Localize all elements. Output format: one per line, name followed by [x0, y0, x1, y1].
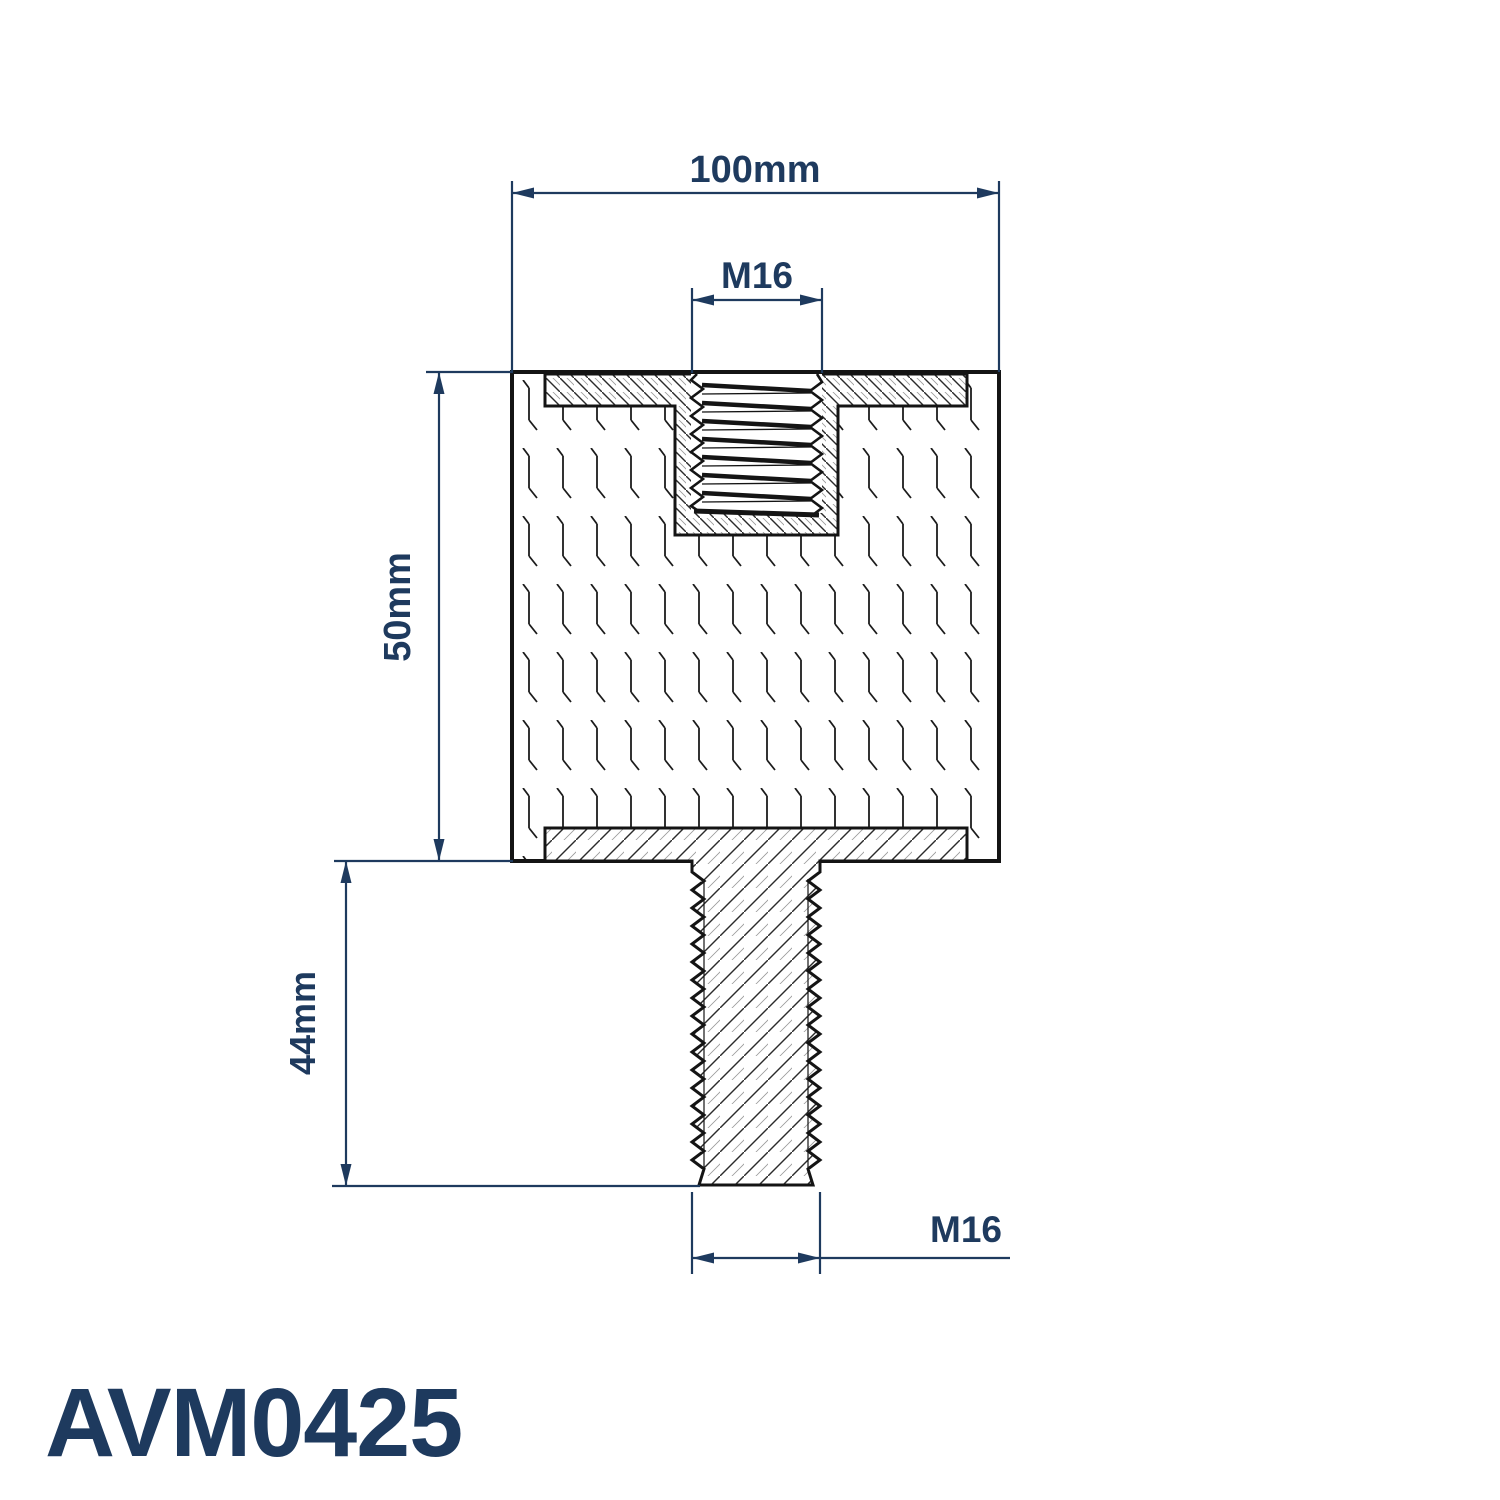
part-section-view [512, 372, 999, 1185]
arrowhead [800, 295, 822, 306]
technical-drawing-page: 100mm M16 50mm 44mm M16 AVM0425 [0, 0, 1500, 1500]
arrowhead [341, 861, 352, 883]
label-bottom-thread: M16 [930, 1209, 1002, 1250]
arrowhead [798, 1253, 820, 1264]
technical-drawing-canvas: 100mm M16 50mm 44mm M16 AVM0425 [0, 0, 1500, 1500]
label-overall-width: 100mm [690, 149, 821, 191]
arrowhead [434, 372, 445, 394]
arrowhead [977, 188, 999, 199]
part-number-title: AVM0425 [45, 1368, 462, 1477]
label-stud-length: 44mm [282, 971, 323, 1075]
bottom-plate-stud [545, 828, 967, 1185]
arrowhead [341, 1164, 352, 1186]
arrowhead [434, 839, 445, 861]
arrowhead [692, 1253, 714, 1264]
label-body-height: 50mm [377, 552, 419, 662]
arrowhead [692, 295, 714, 306]
label-top-thread: M16 [721, 255, 793, 296]
arrowhead [512, 188, 534, 199]
